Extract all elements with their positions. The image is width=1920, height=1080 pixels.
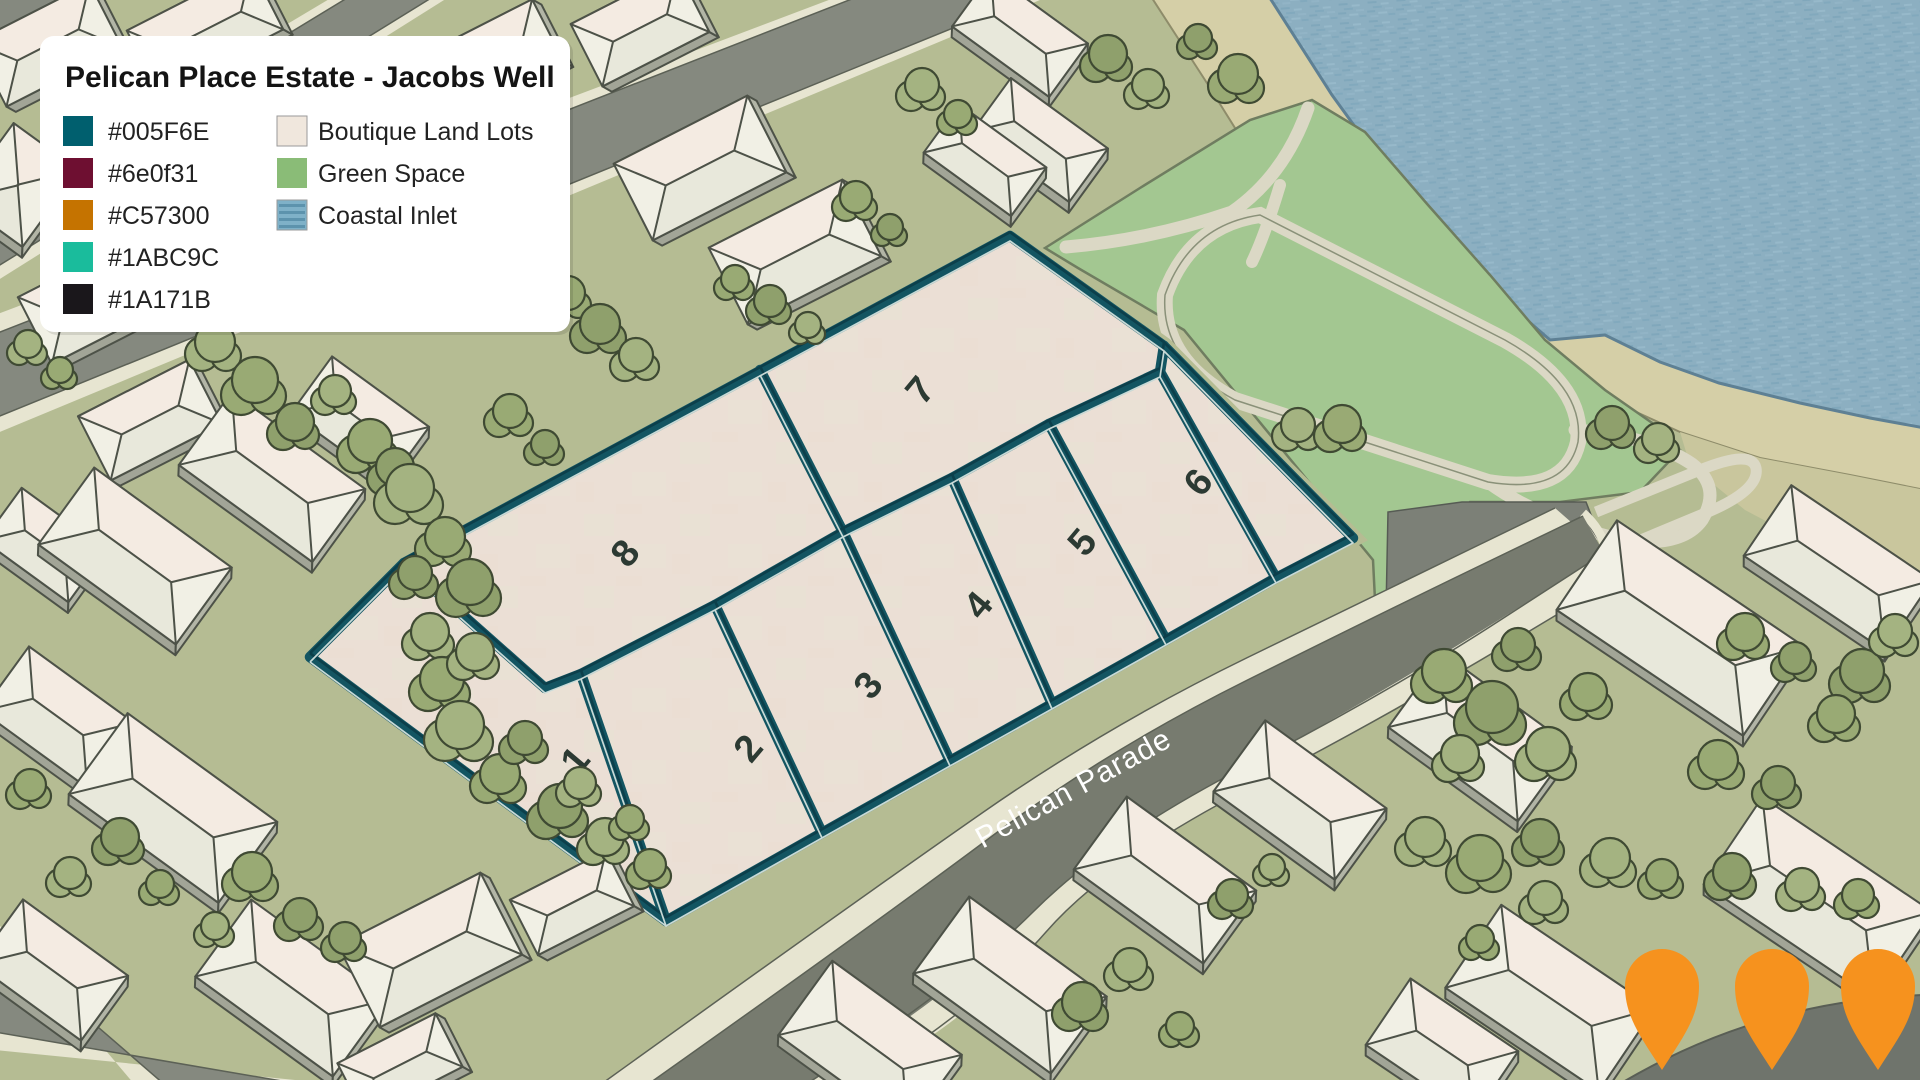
svg-text:#1ABC9C: #1ABC9C [108,244,219,272]
svg-text:#1A171B: #1A171B [108,286,211,314]
svg-text:Boutique Land Lots: Boutique Land Lots [318,118,533,146]
svg-text:Green Space: Green Space [318,160,465,188]
svg-text:#C57300: #C57300 [108,202,209,230]
svg-text:Pelican Place Estate - Jacobs: Pelican Place Estate - Jacobs Well [65,61,555,94]
svg-text:Coastal Inlet: Coastal Inlet [318,202,457,230]
svg-text:#6e0f31: #6e0f31 [108,160,198,188]
svg-text:#005F6E: #005F6E [108,118,209,146]
